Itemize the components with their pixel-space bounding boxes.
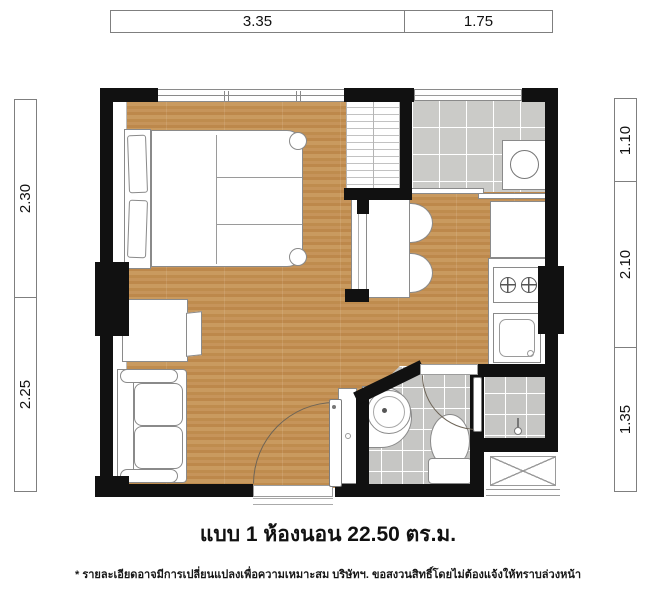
dimension-label-right-2: 2.10 [615, 181, 636, 347]
ac-ledge-hatch [490, 456, 556, 486]
bed-pillow [127, 200, 148, 259]
toilet-tank [428, 458, 472, 484]
window-mullion [224, 91, 229, 102]
door-handle-icon [332, 405, 336, 409]
washing-machine [502, 140, 546, 190]
sofa-backrest [117, 369, 134, 483]
wall-stub [345, 289, 369, 302]
wall-segment [344, 188, 412, 200]
tv [186, 311, 202, 357]
dimension-label-left-2: 2.25 [15, 297, 36, 491]
bed-sheet-line [216, 224, 302, 225]
wall-segment [356, 394, 369, 497]
wash-basin-bowl [373, 396, 405, 428]
dimension-label-right-3: 1.35 [615, 347, 636, 491]
stove-burner-icon [500, 277, 516, 293]
wall-segment [482, 438, 558, 452]
sofa-cushion [134, 426, 183, 469]
wall-stub [357, 198, 369, 214]
bed-mattress [151, 130, 303, 267]
dimension-label-right-1: 1.10 [615, 99, 636, 181]
sofa-armrest [120, 369, 178, 383]
wardrobe-divider [373, 101, 374, 189]
basin-faucet-icon [382, 408, 387, 413]
bed-corner-cushion [289, 132, 307, 150]
bedroom-window [157, 89, 346, 102]
floor-plan-canvas: 3.35 1.75 2.30 2.25 1.10 2.10 1.35 [0, 0, 656, 599]
bed-pillow [127, 135, 148, 194]
dimension-label-left-1: 2.30 [15, 100, 36, 297]
wall-segment [335, 484, 482, 497]
dimension-label-top-1: 3.35 [111, 11, 404, 32]
plan-disclaimer: * รายละเอียดอาจมีการเปลี่ยนแปลงเพื่อความ… [0, 565, 656, 583]
shower-valve-knob [514, 427, 522, 435]
wall-segment [400, 98, 412, 196]
wall-column [95, 262, 129, 336]
cabinet-handle-icon [345, 433, 351, 439]
wall-column [95, 476, 129, 497]
bed-sheet-fold [216, 135, 217, 264]
entry-door-leaf [329, 399, 342, 487]
wall-segment [476, 364, 558, 377]
stove-burner-icon [521, 277, 537, 293]
dimension-bar-top: 3.35 1.75 [110, 10, 553, 33]
wardrobe [346, 100, 400, 190]
dimension-bar-left: 2.30 2.25 [14, 99, 37, 492]
fridge [490, 201, 546, 258]
tv-console [122, 299, 188, 362]
wall-column [538, 266, 564, 334]
washing-machine-drum [510, 150, 539, 179]
balcony-sliding-door [410, 188, 484, 194]
sink-drain [527, 350, 534, 357]
entry-threshold [253, 498, 333, 505]
sofa-cushion [134, 383, 183, 426]
bathroom-door-opening [420, 364, 478, 375]
kitchen-sink [493, 313, 541, 363]
partition-line [358, 203, 359, 289]
dimension-label-top-2: 1.75 [404, 11, 552, 32]
stove [493, 267, 541, 303]
ledge-railing [486, 489, 560, 496]
balcony-railing [414, 89, 522, 101]
balcony-sliding-door [478, 193, 546, 199]
entry-door-opening [253, 485, 333, 497]
bed-sheet-line [216, 177, 302, 178]
dining-table [366, 196, 410, 298]
dimension-bar-right: 1.10 2.10 1.35 [614, 98, 637, 492]
bed-corner-cushion [289, 248, 307, 266]
plan-title: แบบ 1 ห้องนอน 22.50 ตร.ม. [0, 518, 656, 551]
bathroom-door-leaf [473, 377, 482, 432]
window-mullion [296, 91, 301, 102]
